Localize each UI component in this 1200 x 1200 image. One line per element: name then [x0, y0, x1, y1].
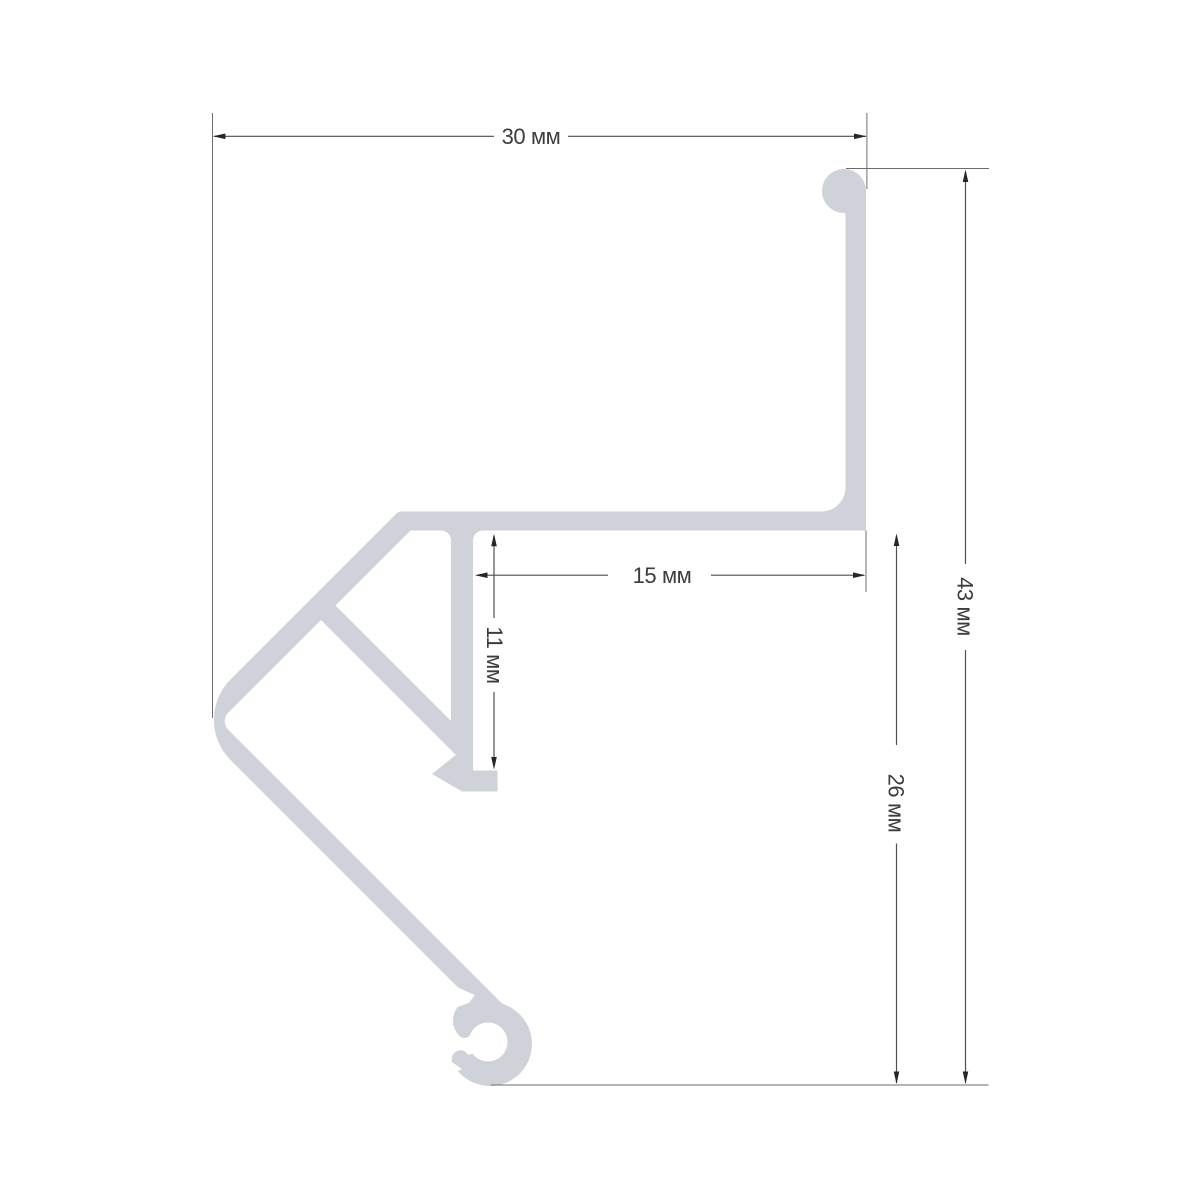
svg-text:26 мм: 26 мм — [884, 774, 909, 833]
svg-text:15 мм: 15 мм — [633, 563, 692, 588]
svg-text:30 мм: 30 мм — [502, 124, 561, 149]
svg-text:11 мм: 11 мм — [482, 626, 507, 683]
svg-text:43 мм: 43 мм — [953, 577, 978, 636]
